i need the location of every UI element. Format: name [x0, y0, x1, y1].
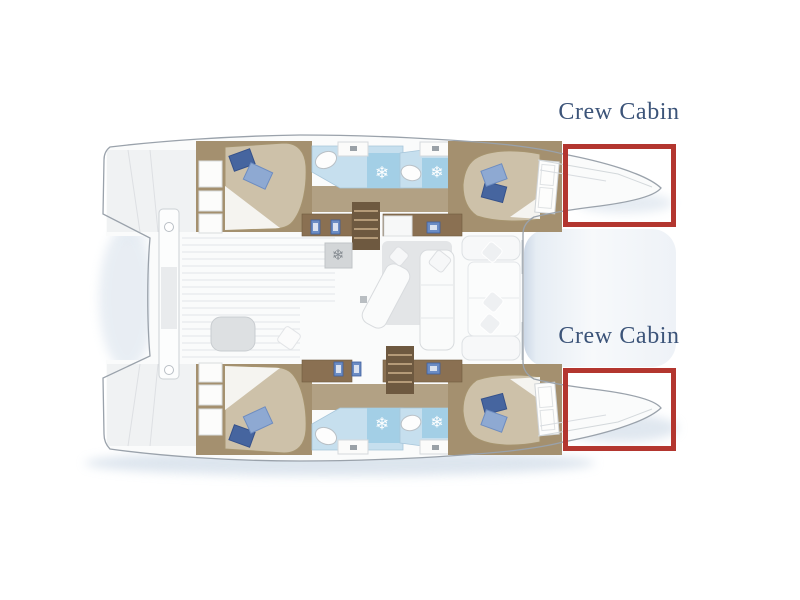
stairs-bottom	[386, 346, 414, 394]
sink-icon	[432, 146, 439, 151]
wardrobe	[199, 161, 222, 233]
counter-top	[384, 216, 412, 236]
corridor-floor-top	[300, 186, 470, 212]
forward-cabin-bottom	[448, 364, 562, 455]
crew-cabin-highlight-bottom	[563, 368, 676, 451]
sink-icon	[350, 445, 357, 450]
crew-cabin-highlight-top	[563, 144, 676, 227]
forward-cabin-top	[448, 141, 562, 232]
corridor-floor-bottom	[300, 384, 470, 410]
forward-seat	[462, 336, 520, 360]
sink-icon	[350, 146, 357, 151]
sink-icon	[432, 445, 439, 450]
crew-cabin-label-top: Crew Cabin	[549, 100, 689, 125]
shower-icon: ❄	[375, 415, 389, 434]
table-leg	[360, 296, 367, 303]
cockpit-table	[211, 317, 255, 351]
bathrooms-bottom: ❄ ❄	[312, 408, 453, 454]
cabin-door	[535, 382, 559, 436]
floorplan-svg: ❄ ❄	[0, 0, 800, 600]
shower-icon: ❄	[430, 415, 443, 432]
counter	[302, 214, 352, 236]
stairs-top	[352, 202, 380, 250]
snowflake-icon: ❄	[332, 248, 345, 264]
counter	[302, 360, 352, 382]
shower-icon: ❄	[430, 165, 443, 182]
cabin-door	[535, 160, 559, 214]
catamaran-floorplan-page: ❄ ❄	[0, 0, 800, 600]
bathrooms-top: ❄ ❄	[312, 142, 453, 188]
cleat-top	[165, 223, 174, 232]
wardrobe	[199, 363, 222, 435]
bench-cushion	[161, 267, 177, 329]
crew-cabin-label-bottom: Crew Cabin	[549, 324, 689, 349]
cleat-bottom	[165, 366, 174, 375]
forward-cockpit	[462, 236, 522, 360]
shower-icon: ❄	[375, 164, 389, 183]
aft-cabin-top	[196, 141, 312, 233]
aft-cabin-bottom	[196, 363, 312, 455]
